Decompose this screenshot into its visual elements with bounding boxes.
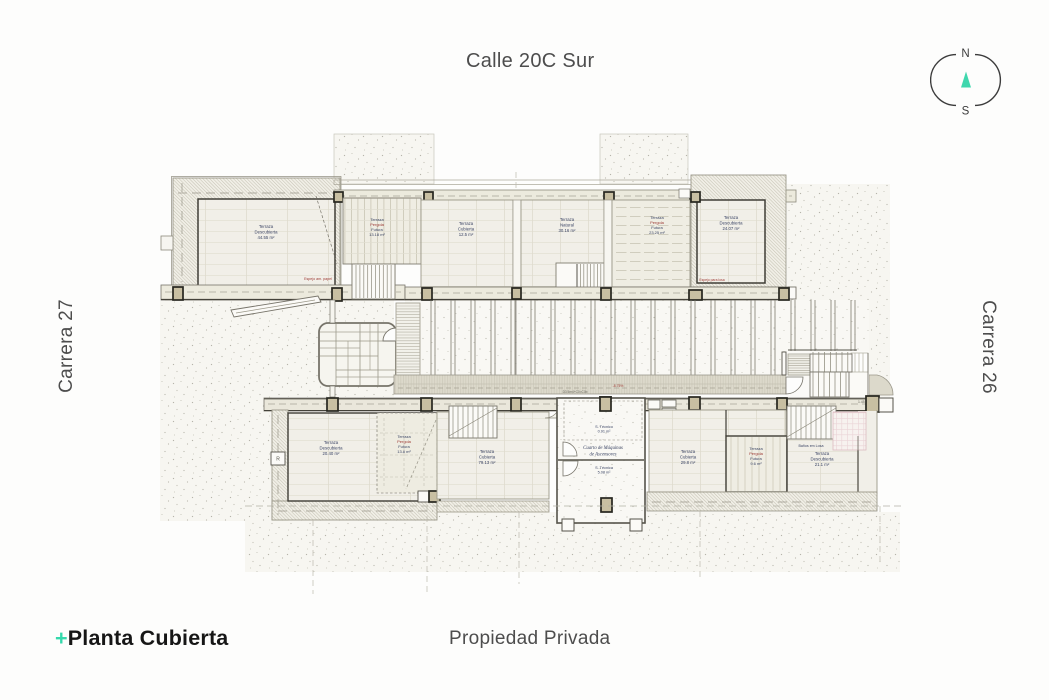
svg-text:20.40 m²: 20.40 m² <box>323 451 341 456</box>
svg-text:Espejo am. papel: Espejo am. papel <box>304 277 332 281</box>
svg-text:S. Técnica: S. Técnica <box>595 466 614 470</box>
svg-text:Terraza: Terraza <box>815 451 830 456</box>
svg-text:13.18 m²: 13.18 m² <box>369 232 385 237</box>
svg-text:de Ascensores: de Ascensores <box>589 453 616 458</box>
svg-text:-8.75%: -8.75% <box>613 384 624 388</box>
svg-text:Terraza: Terraza <box>259 224 274 229</box>
svg-text:29.8 m²: 29.8 m² <box>681 460 696 465</box>
svg-text:D3 5m4+C0=C0b: D3 5m4+C0=C0b <box>563 390 588 394</box>
svg-text:Terraza: Terraza <box>724 215 739 220</box>
svg-text:Descubierta: Descubierta <box>720 221 744 226</box>
svg-text:9.6 m²: 9.6 m² <box>750 461 762 466</box>
svg-text:24.07 m²: 24.07 m² <box>723 226 741 231</box>
svg-text:Cubierta: Cubierta <box>458 227 475 232</box>
svg-text:30.16 m²: 30.16 m² <box>559 228 577 233</box>
svg-text:5.08 m²: 5.08 m² <box>598 471 612 475</box>
svg-text:R: R <box>276 457 280 463</box>
svg-text:Espejo para losa: Espejo para losa <box>699 278 724 282</box>
svg-text:S. Técnico: S. Técnico <box>595 425 613 429</box>
svg-text:21.1 m²: 21.1 m² <box>815 462 830 467</box>
svg-text:Terraza: Terraza <box>681 449 696 454</box>
svg-text:Descubierta: Descubierta <box>320 446 344 451</box>
svg-text:1.45: 1.45 <box>858 400 865 404</box>
svg-text:44.55 m²: 44.55 m² <box>258 235 276 240</box>
svg-text:79.13 m²: 79.13 m² <box>479 460 497 465</box>
svg-text:Terraza: Terraza <box>324 440 339 445</box>
svg-text:Cubierta: Cubierta <box>680 455 697 460</box>
svg-text:Natural: Natural <box>560 223 574 228</box>
svg-text:Terraza: Terraza <box>560 217 575 222</box>
svg-text:0.91 m²: 0.91 m² <box>598 430 612 434</box>
svg-text:Terraza: Terraza <box>480 449 495 454</box>
svg-text:Descubierta: Descubierta <box>811 457 835 462</box>
svg-text:13.8 m²: 13.8 m² <box>397 449 411 454</box>
svg-text:12.5 m²: 12.5 m² <box>459 232 474 237</box>
svg-text:23.25 m²: 23.25 m² <box>649 230 665 235</box>
svg-text:Cubierta: Cubierta <box>479 455 496 460</box>
svg-text:Descubierta: Descubierta <box>255 230 279 235</box>
svg-text:Cuarto de Máquinas: Cuarto de Máquinas <box>583 446 623 451</box>
svg-text:Baños em Losa: Baños em Losa <box>799 444 824 448</box>
svg-text:Terraza: Terraza <box>459 221 474 226</box>
